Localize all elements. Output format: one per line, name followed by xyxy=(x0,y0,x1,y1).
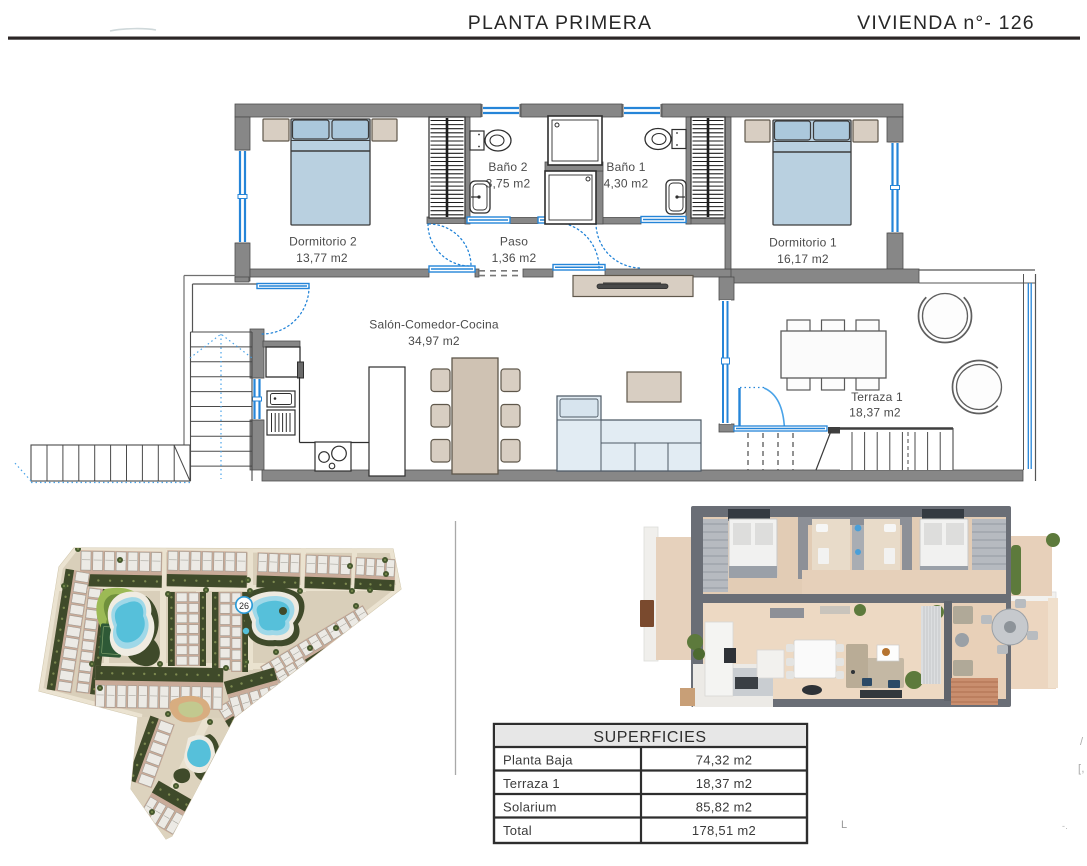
svg-text:178,51 m2: 178,51 m2 xyxy=(692,823,756,838)
svg-text:VIVIENDA n°- 126: VIVIENDA n°- 126 xyxy=(857,12,1035,34)
svg-text:26: 26 xyxy=(239,601,249,611)
svg-text:3,75 m2: 3,75 m2 xyxy=(486,177,531,191)
svg-text:74,32 m2: 74,32 m2 xyxy=(696,753,753,768)
svg-text:-.: -. xyxy=(1062,821,1068,831)
svg-text:1,36 m2: 1,36 m2 xyxy=(492,251,537,265)
svg-text:Dormitorio 1: Dormitorio 1 xyxy=(769,236,837,250)
svg-text:Salón-Comedor-Cocina: Salón-Comedor-Cocina xyxy=(369,318,499,332)
svg-text:Paso: Paso xyxy=(500,235,528,249)
svg-text:PLANTA PRIMERA: PLANTA PRIMERA xyxy=(468,12,652,34)
svg-text:16,17 m2: 16,17 m2 xyxy=(777,252,829,266)
svg-text:Dormitorio 2: Dormitorio 2 xyxy=(289,235,357,249)
svg-text:13,77 m2: 13,77 m2 xyxy=(296,251,348,265)
svg-text:Baño 1: Baño 1 xyxy=(606,160,645,174)
svg-text:Solarium: Solarium xyxy=(503,800,557,815)
svg-text:Planta Baja: Planta Baja xyxy=(503,753,573,768)
svg-text:18,37 m2: 18,37 m2 xyxy=(849,406,901,420)
svg-text:[,: [, xyxy=(1078,763,1085,775)
svg-text:4,30 m2: 4,30 m2 xyxy=(604,177,649,191)
svg-text:Baño 2: Baño 2 xyxy=(488,160,527,174)
svg-text:Terraza 1: Terraza 1 xyxy=(503,776,560,791)
svg-text:L: L xyxy=(841,819,847,831)
svg-text:34,97 m2: 34,97 m2 xyxy=(408,334,460,348)
svg-text:SUPERFICIES: SUPERFICIES xyxy=(593,729,706,746)
svg-text:85,82 m2: 85,82 m2 xyxy=(696,800,753,815)
svg-text:Terraza 1: Terraza 1 xyxy=(851,390,903,404)
svg-text:18,37 m2: 18,37 m2 xyxy=(696,776,753,791)
svg-text:Total: Total xyxy=(503,823,532,838)
